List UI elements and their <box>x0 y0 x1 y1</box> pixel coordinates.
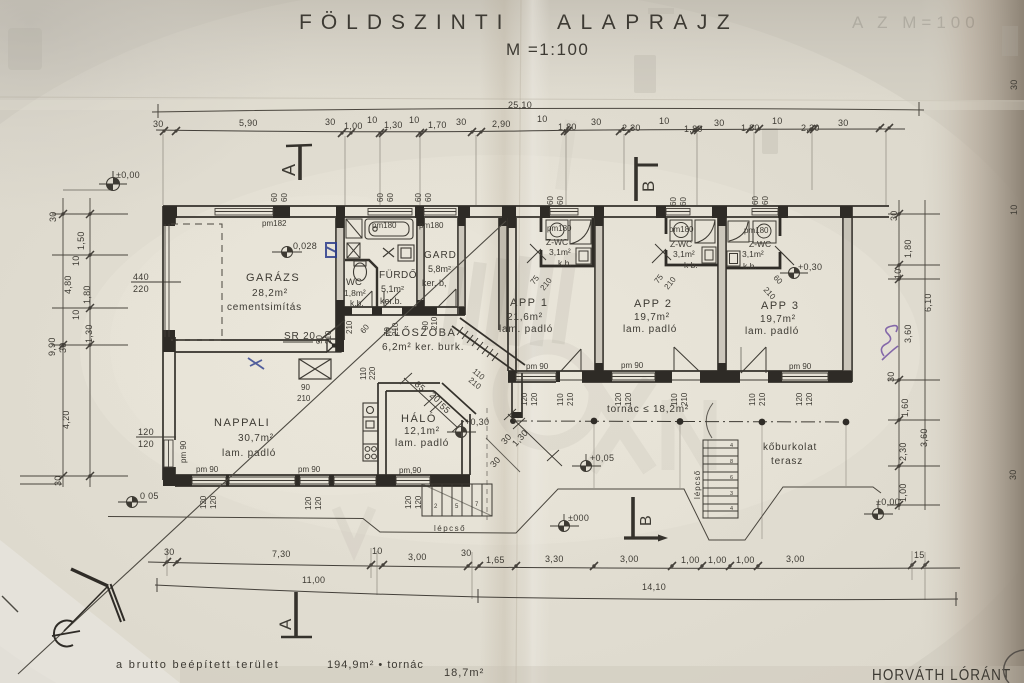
svg-text:1,00: 1,00 <box>736 555 755 565</box>
svg-text:14,10: 14,10 <box>642 582 666 592</box>
svg-text:11,00: 11,00 <box>302 575 325 585</box>
svg-text:3,30: 3,30 <box>545 554 564 564</box>
svg-text:HORVÁTH LÓRÁNT: HORVÁTH LÓRÁNT <box>872 666 1011 683</box>
svg-text:18,7m²: 18,7m² <box>444 667 484 679</box>
svg-text:15: 15 <box>914 550 925 560</box>
svg-text:3,00: 3,00 <box>408 552 427 562</box>
svg-text:1,65: 1,65 <box>486 555 505 565</box>
svg-text:30: 30 <box>164 547 175 557</box>
svg-text:7,30: 7,30 <box>272 549 291 559</box>
svg-text:a brutto beépített terület: a brutto beépített terület <box>116 659 280 671</box>
svg-text:30: 30 <box>461 548 472 558</box>
svg-text:194,9m² • tornác: 194,9m² • tornác <box>327 659 424 671</box>
svg-text:1,00: 1,00 <box>708 555 727 565</box>
svg-text:3,00: 3,00 <box>786 554 805 564</box>
svg-text:3,00: 3,00 <box>620 554 639 564</box>
svg-text:1,00: 1,00 <box>681 555 700 565</box>
